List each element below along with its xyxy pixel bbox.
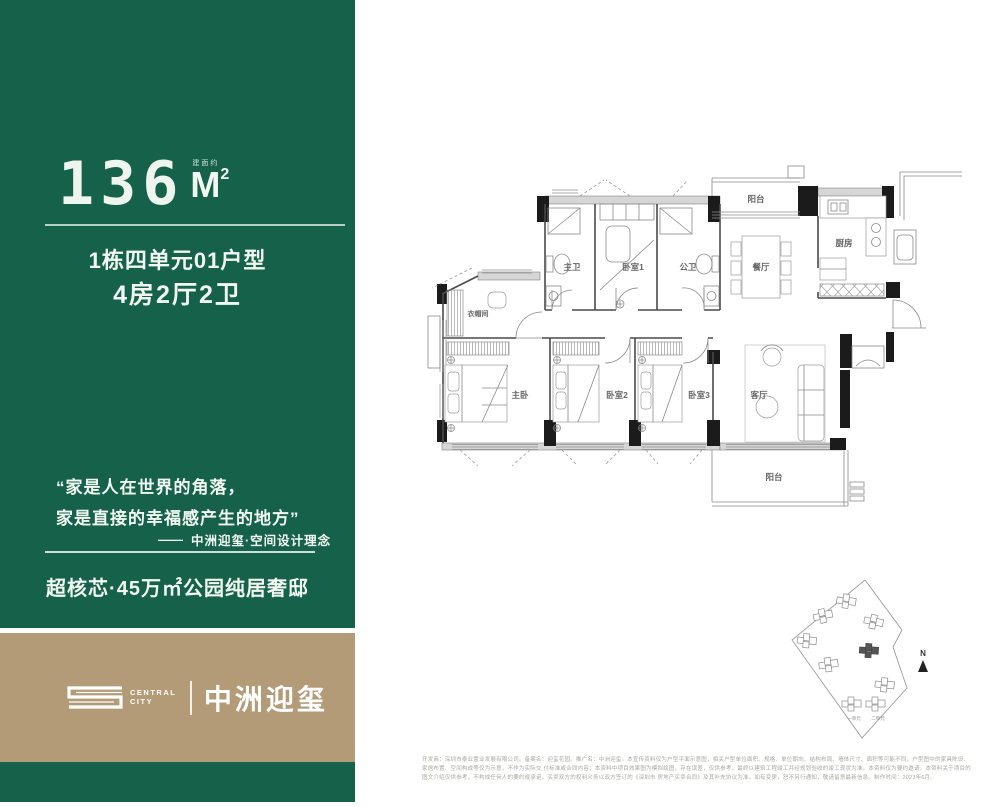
area-superscript: 2	[220, 166, 229, 184]
entry-door	[892, 172, 962, 328]
area-unit: M	[190, 168, 220, 202]
compass-label: N	[920, 649, 926, 658]
siteplan: 一单元 二单元 N	[790, 570, 1000, 760]
quote-block: “家是人在世界的角落， 家是直接的幸福感产生的地方”	[56, 472, 300, 534]
attribution-text: 中洲迎玺·空间设计理念	[191, 530, 331, 549]
brand-block: CENTRAL CITY 中洲迎玺	[0, 633, 355, 762]
area-number: 136	[58, 156, 184, 212]
kitchen-fixtures	[820, 196, 916, 296]
area-note: 建面约	[192, 158, 229, 168]
brand-name-cn: 中洲迎玺	[204, 678, 328, 718]
brand-name-en: CENTRAL CITY	[130, 689, 176, 706]
site-buildings	[797, 593, 895, 711]
room-label-master-bedroom: 主卧	[511, 390, 529, 400]
bedroom1-furniture	[600, 204, 654, 310]
room-label-public-bath: 公卫	[679, 262, 697, 272]
disclaimer-line-3: 房地产买卖合同》及其补充协议为准。如有变更，恕不另行通知，敬请留意最新信息。制作…	[657, 775, 936, 781]
attribution-dash: ——	[158, 533, 183, 547]
compass-icon: N	[918, 649, 928, 672]
site-highlighted-building	[859, 643, 879, 658]
brand-name-en-bottom: CITY	[130, 698, 176, 707]
room-label-living: 客厅	[749, 390, 768, 400]
room-label-balcony-top: 阳台	[747, 194, 765, 204]
divider-top	[45, 224, 345, 226]
quote-line-1: “家是人在世界的角落，	[56, 472, 300, 503]
site-unit2-label: 二单元	[871, 715, 885, 722]
room-label-master-bath: 主卫	[563, 262, 581, 272]
quote-attribution: —— 中洲迎玺·空间设计理念	[158, 530, 331, 549]
divider-bottom	[45, 551, 315, 553]
bedroom3-furniture	[638, 338, 708, 432]
balcony-bottom-outline	[712, 450, 864, 506]
room-label-dining: 餐厅	[751, 262, 770, 272]
room-label-bedroom3: 卧室3	[688, 390, 710, 400]
balcony-top-outline	[712, 166, 804, 218]
area-headline: 136 建面约 M 2	[58, 156, 229, 212]
poster-canvas: 136 建面约 M 2 1栋四单元01户型 4房2厅2卫 “家是人在世界的角落，…	[0, 0, 1000, 807]
disclaimer: 开发商：深圳市泰业置业发展有限公司。备案名：迎玺花园。推广名：中洲迎玺。本宣传资…	[422, 756, 974, 783]
room-label-bedroom2: 卧室2	[606, 390, 628, 400]
site-unit1-label: 一单元	[847, 715, 861, 722]
room-label-closet: 衣帽间	[468, 309, 489, 318]
unit-info: 1栋四单元01户型	[0, 243, 355, 275]
brand-divider	[190, 681, 192, 715]
floorplan: 阳台 厨房 餐厅	[420, 160, 968, 580]
room-label-kitchen: 厨房	[835, 238, 852, 248]
public-bath-fixtures	[660, 208, 719, 310]
central-city-logo-icon	[66, 683, 124, 713]
slogan-text: 超核芯·45万㎡公园纯居奢邸	[0, 572, 355, 601]
room-label-balcony-bottom: 阳台	[765, 472, 783, 482]
bottom-green-strip	[0, 762, 355, 802]
bedroom2-furniture	[553, 338, 630, 432]
left-info-panel: 136 建面约 M 2 1栋四单元01户型 4房2厅2卫 “家是人在世界的角落，…	[0, 0, 355, 628]
layout-info: 4房2厅2卫	[0, 275, 355, 311]
master-bath-fixtures	[546, 208, 580, 310]
room-label-bedroom1: 卧室1	[622, 262, 644, 272]
